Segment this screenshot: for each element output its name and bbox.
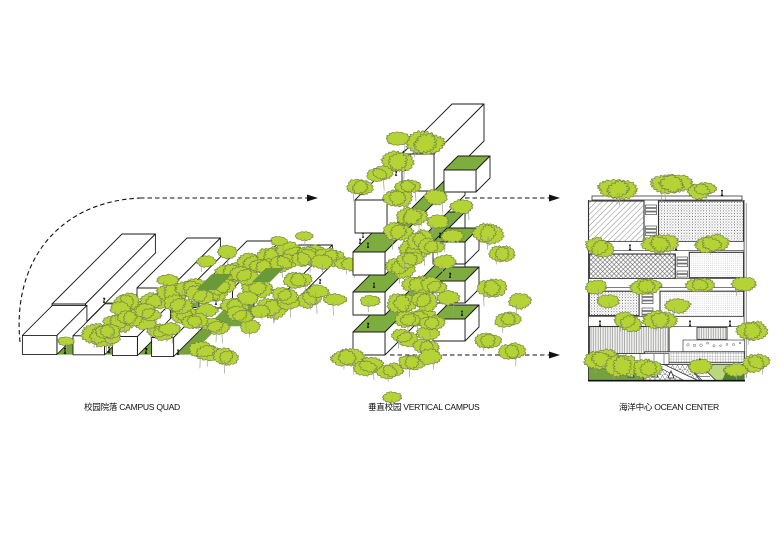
svg-text:校园院落 CAMPUS QUAD: 校园院落 CAMPUS QUAD — [84, 401, 180, 412]
svg-text:垂直校园 VERTICAL CAMPUS: 垂直校园 VERTICAL CAMPUS — [368, 401, 480, 412]
svg-text:海洋中心 OCEAN CENTER: 海洋中心 OCEAN CENTER — [619, 401, 719, 412]
